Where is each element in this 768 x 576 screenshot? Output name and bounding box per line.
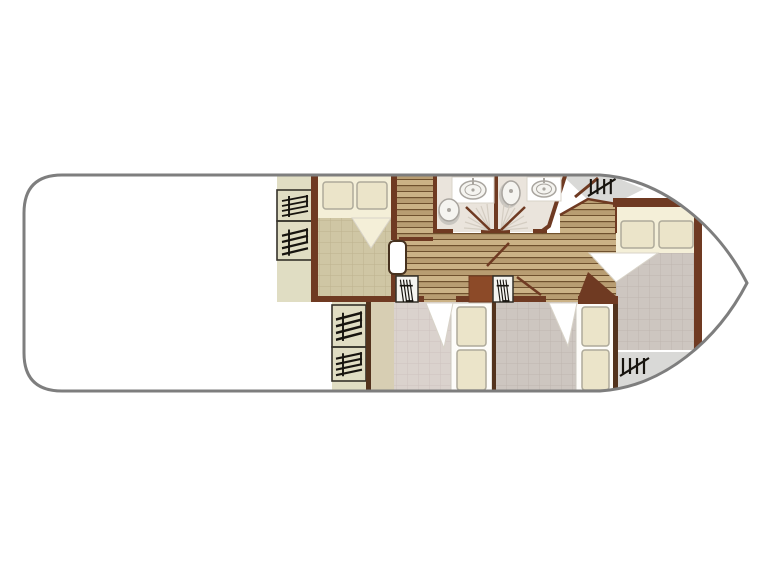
cabin-shelf	[371, 302, 394, 392]
boat-plan-canvas	[0, 0, 768, 576]
mid-cabin-left	[370, 302, 494, 392]
wardrobe-column-mid	[332, 302, 366, 392]
bed-pad	[582, 350, 609, 390]
boat-plan	[0, 0, 768, 576]
pillow	[659, 221, 693, 248]
locker-block	[469, 276, 493, 302]
bow-cabin-right-wall	[694, 203, 702, 352]
aft-cabin	[318, 176, 391, 296]
interior	[277, 176, 702, 392]
corridor-door	[389, 241, 406, 274]
bed-pad	[457, 350, 486, 390]
pillow	[357, 182, 387, 209]
pillow	[621, 221, 654, 248]
toilet-icon	[438, 199, 460, 225]
pillow	[323, 182, 353, 209]
bed-pad	[582, 307, 609, 346]
bed-pad	[457, 307, 486, 346]
mid-cabin-right	[494, 302, 615, 392]
bow-cabin-top-wall	[613, 198, 697, 207]
wardrobe-column-aft	[277, 176, 312, 302]
